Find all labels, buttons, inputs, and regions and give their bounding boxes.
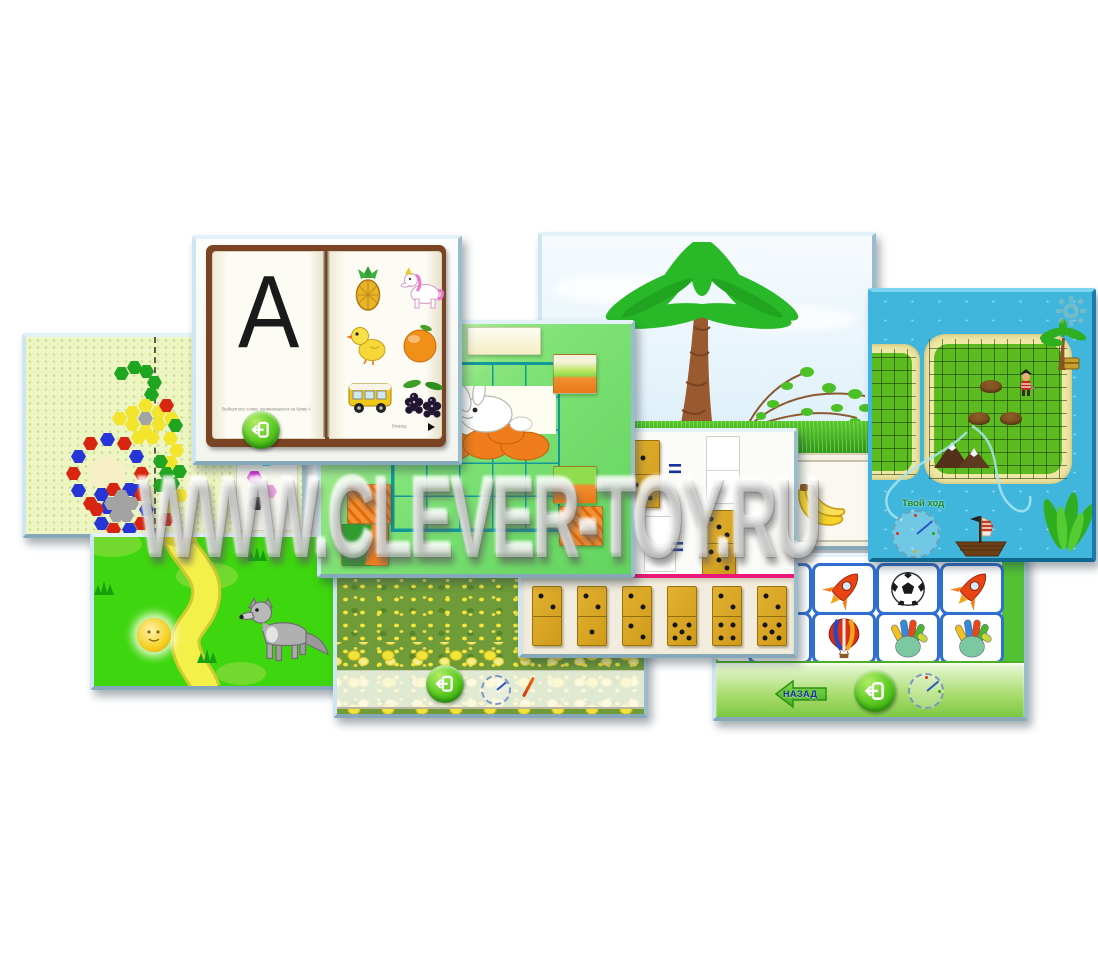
pencil-icon <box>522 677 535 698</box>
domino-slot[interactable] <box>706 436 740 504</box>
forward-icon <box>428 423 435 431</box>
hex-tile <box>100 467 115 480</box>
palm-chest-icon <box>1038 318 1088 374</box>
blackberry-image[interactable] <box>398 377 446 426</box>
exit-icon <box>862 678 888 704</box>
rocket-icon <box>949 568 995 610</box>
turn-label: Твой ход <box>902 498 944 509</box>
clock-icon <box>908 673 944 709</box>
pirate-ship <box>948 512 1014 558</box>
back-button[interactable]: НАЗАД <box>774 679 828 709</box>
hex-tile <box>100 455 115 468</box>
chick-image[interactable] <box>346 321 392 370</box>
gear-icon[interactable] <box>1056 296 1086 326</box>
domino-piece[interactable] <box>622 586 652 646</box>
forward-label: Вперед <box>392 424 406 429</box>
hex-tile <box>66 467 81 480</box>
flower-toolbar <box>337 670 644 709</box>
kolobok-character[interactable] <box>137 618 171 652</box>
puzzle-piece-grassorange[interactable] <box>553 466 597 504</box>
hex-tile <box>134 517 149 530</box>
letter-display: А <box>238 261 299 364</box>
pineapple-image[interactable] <box>346 265 390 318</box>
bus-image[interactable] <box>346 377 394 422</box>
memory-cell-balloon[interactable] <box>812 612 876 664</box>
hand-icon <box>949 617 995 659</box>
hex-tile <box>112 412 127 425</box>
hand-icon <box>885 617 931 659</box>
domino-piece[interactable] <box>757 586 787 646</box>
puzzle-piece-leaforange[interactable] <box>341 524 389 566</box>
screenshot-collage: НАЗАД <box>0 0 1098 960</box>
pirate-map-card: Твой ход <box>868 288 1096 562</box>
exit-icon <box>249 418 273 442</box>
hex-tile <box>159 513 174 526</box>
hex-tile <box>117 437 132 450</box>
memory-cell-hand[interactable] <box>940 612 1004 664</box>
hex-tile <box>173 489 188 502</box>
rocket-icon <box>821 568 867 610</box>
bananas-icon <box>787 462 865 534</box>
hex-tile <box>114 367 129 380</box>
domino-tray <box>522 578 794 654</box>
exit-button[interactable] <box>242 411 280 449</box>
domino-piece[interactable] <box>532 586 562 646</box>
domino-piece[interactable] <box>712 586 742 646</box>
hex-tile <box>169 444 184 457</box>
hex-tile <box>112 461 127 474</box>
domino-piece[interactable] <box>667 586 697 646</box>
memory-cell-soccer[interactable] <box>876 563 940 615</box>
hex-tile <box>71 450 86 463</box>
equals-sign: = <box>668 458 682 482</box>
forward-control[interactable]: Вперед <box>392 421 435 432</box>
exit-icon <box>433 672 457 696</box>
orange-image[interactable] <box>398 321 442 370</box>
domino-piece[interactable] <box>702 510 736 576</box>
puzzle-piece-hill[interactable] <box>553 354 597 394</box>
pirate-character[interactable] <box>1016 368 1036 398</box>
pirate-clock-icon <box>892 510 940 558</box>
hex-tile <box>138 412 153 425</box>
hex-tile <box>125 418 140 431</box>
palm-leaves-corner <box>1034 488 1092 558</box>
kolobok-face <box>137 618 171 652</box>
hex-tile <box>88 473 103 486</box>
memory-footer: НАЗАД <box>716 661 1024 717</box>
hex-tile <box>94 517 109 530</box>
hex-tile <box>83 437 98 450</box>
exit-button[interactable] <box>854 670 896 712</box>
hex-tile <box>88 461 103 474</box>
hex-tile <box>100 433 115 446</box>
exit-button[interactable] <box>426 665 464 703</box>
dirt-mound[interactable] <box>980 380 1002 393</box>
wolf-character[interactable] <box>232 585 332 680</box>
clock-icon <box>481 675 511 705</box>
unicorn-image[interactable] <box>398 265 446 314</box>
back-button-label: НАЗАД <box>783 689 817 699</box>
hex-tile <box>134 467 149 480</box>
hex-tile <box>165 501 180 514</box>
alphabet-book-card: А Выбери все слова, начинающиеся на букв… <box>192 235 462 465</box>
hex-tile <box>163 432 178 445</box>
puzzle-piece-carrot[interactable] <box>347 484 391 524</box>
memory-cell-rocket[interactable] <box>940 563 1004 615</box>
hex-tile <box>71 484 86 497</box>
memory-cell-hand[interactable] <box>876 612 940 664</box>
puzzle-piece-sky[interactable] <box>467 327 541 355</box>
domino-piece[interactable] <box>577 586 607 646</box>
hex-tile <box>129 450 144 463</box>
equals-sign: = <box>670 536 684 560</box>
puzzle-piece-carrot[interactable] <box>559 506 603 546</box>
hex-tile <box>139 503 154 516</box>
hex-tile <box>125 406 140 419</box>
soccer-icon <box>886 568 930 610</box>
balloon-icon <box>822 617 866 659</box>
memory-cell-rocket[interactable] <box>812 563 876 615</box>
